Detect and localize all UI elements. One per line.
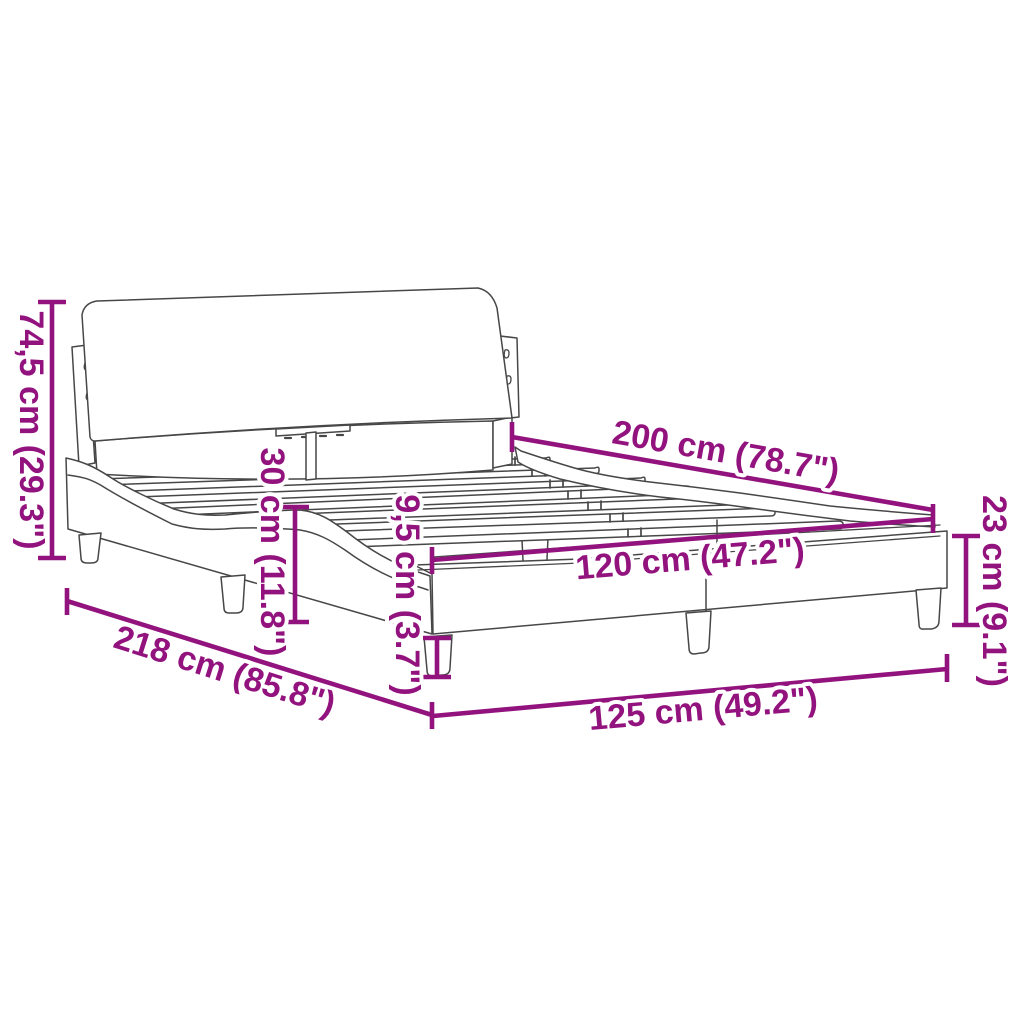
svg-text:23 cm (9.1"): 23 cm (9.1") xyxy=(975,495,1013,687)
svg-text:9,5 cm (3.7"): 9,5 cm (3.7") xyxy=(388,494,426,695)
svg-text:74,5 cm (29.3"): 74,5 cm (29.3") xyxy=(12,310,50,549)
svg-text:30 cm (11.8"): 30 cm (11.8") xyxy=(253,448,291,657)
